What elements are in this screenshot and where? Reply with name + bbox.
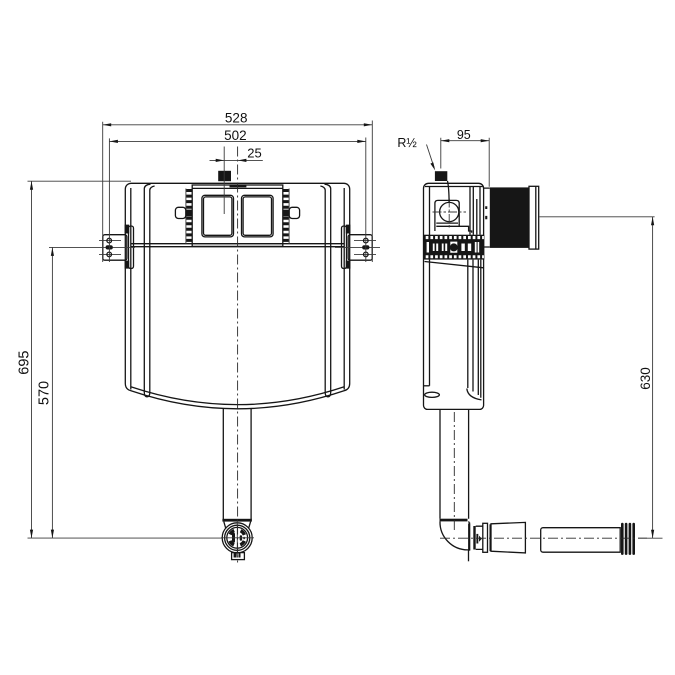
svg-text:25: 25 (247, 146, 261, 161)
svg-text:R½: R½ (397, 136, 417, 150)
svg-text:695: 695 (16, 350, 32, 374)
svg-text:630: 630 (638, 367, 653, 390)
svg-text:570: 570 (37, 381, 53, 405)
svg-text:502: 502 (224, 128, 247, 143)
svg-text:528: 528 (225, 111, 248, 126)
svg-text:95: 95 (457, 128, 471, 142)
